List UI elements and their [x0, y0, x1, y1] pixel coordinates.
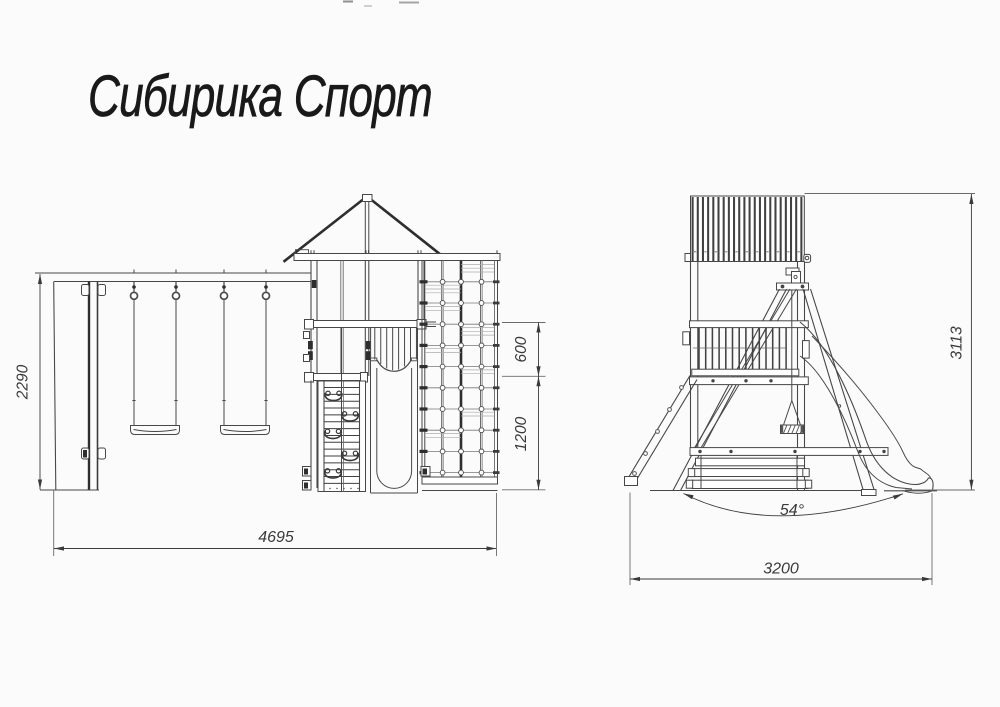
svg-text:2290: 2290 — [15, 364, 32, 400]
svg-text:3200: 3200 — [763, 561, 799, 578]
svg-text:54°: 54° — [780, 502, 805, 519]
svg-text:600: 600 — [513, 336, 530, 362]
svg-text:1200: 1200 — [513, 416, 530, 451]
svg-text:4695: 4695 — [258, 529, 294, 546]
svg-text:3113: 3113 — [949, 326, 966, 360]
